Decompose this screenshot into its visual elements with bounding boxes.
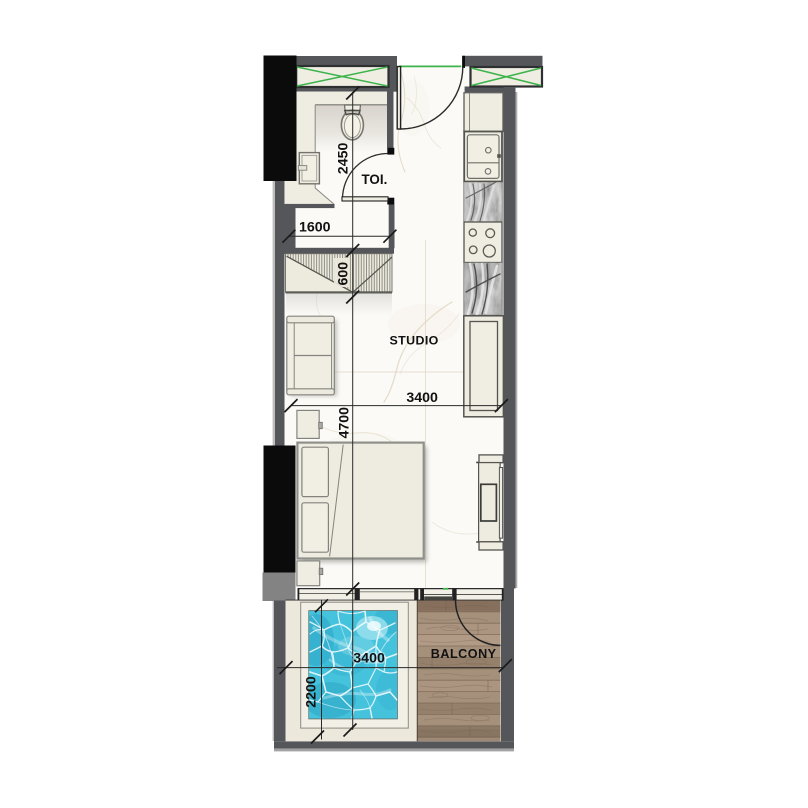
svg-text:3400: 3400 (353, 650, 385, 666)
svg-text:2200: 2200 (303, 676, 319, 708)
svg-text:3400: 3400 (406, 390, 438, 406)
svg-text:600: 600 (336, 262, 352, 286)
svg-text:TOI.: TOI. (362, 172, 388, 187)
svg-text:BALCONY: BALCONY (431, 647, 497, 661)
svg-text:STUDIO: STUDIO (390, 333, 439, 347)
svg-text:1600: 1600 (299, 219, 331, 235)
svg-text:4700: 4700 (337, 407, 353, 439)
svg-text:2450: 2450 (336, 143, 352, 175)
